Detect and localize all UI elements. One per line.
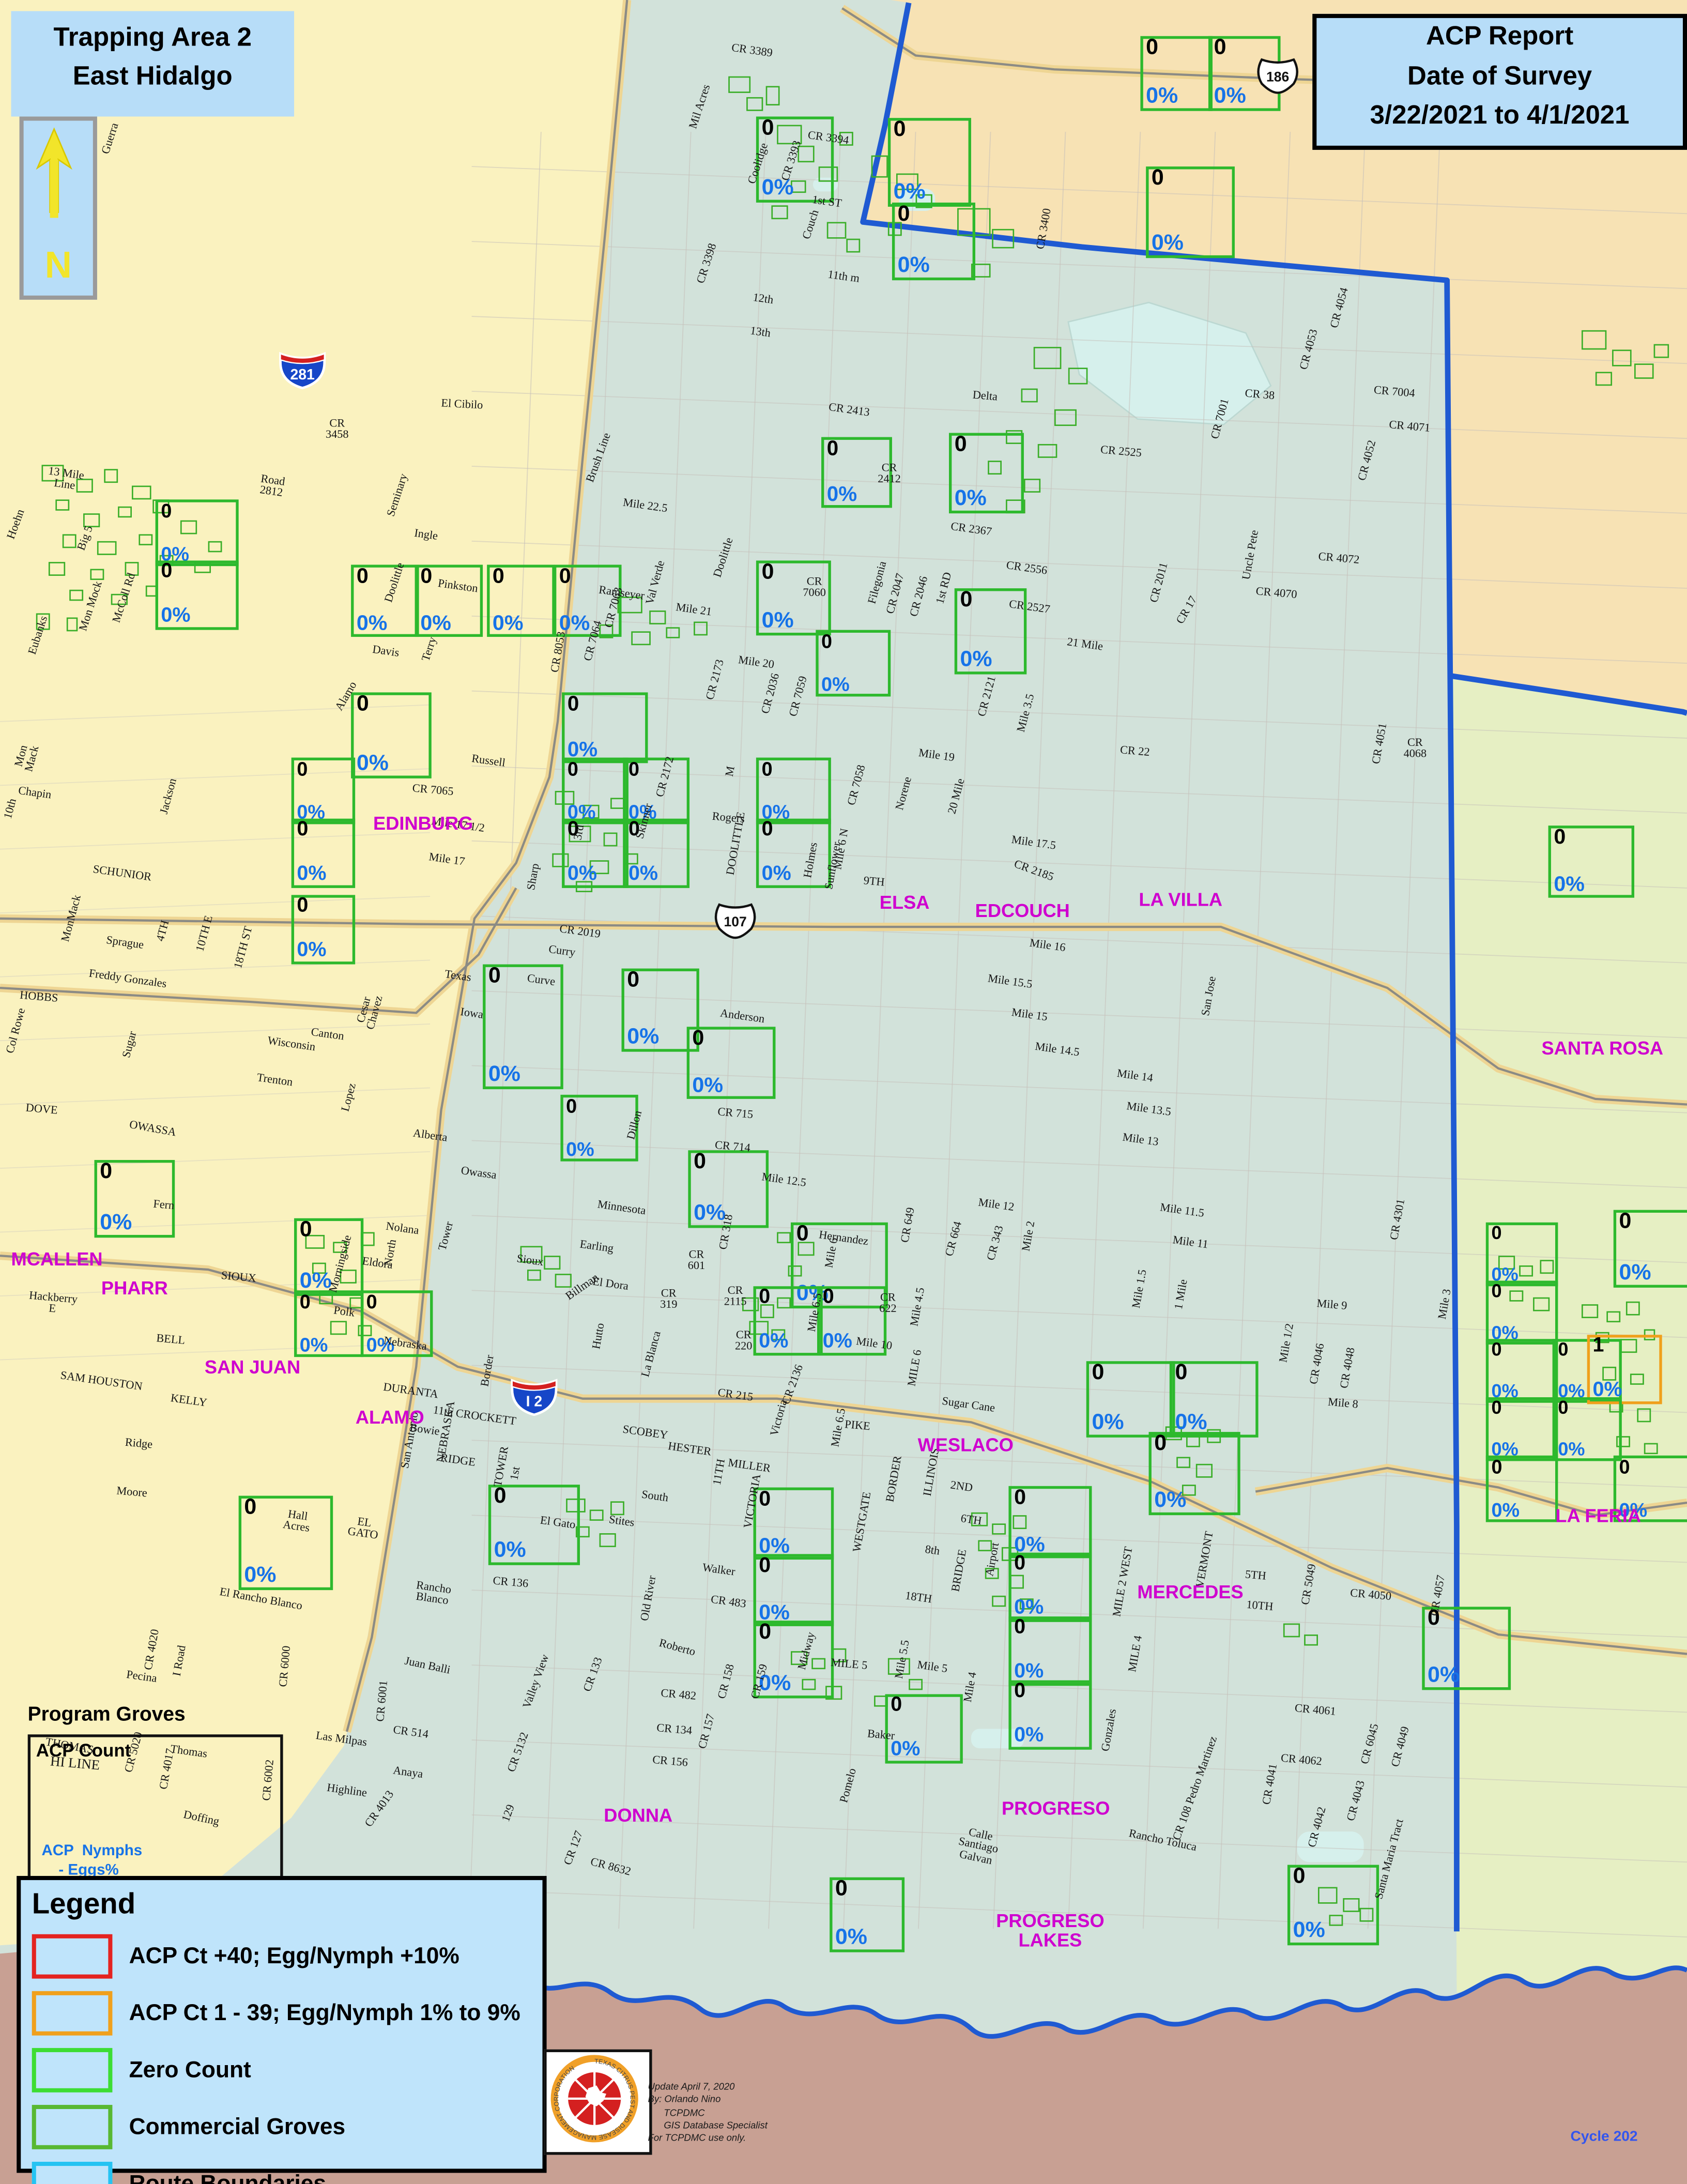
egg-nymph-pct-value: 0% [827,484,857,505]
us-route-shield-icon: 107 [712,901,759,947]
commercial-grove-outline [590,1509,604,1520]
grove-count-box: 00% [687,1027,776,1099]
acp-count-value: 0 [357,566,369,587]
legend-item: Zero Count [32,2048,543,2093]
egg-nymph-pct-value: 0% [297,865,326,885]
grove-count-box: 00% [816,630,891,697]
grove-count-box: 00% [292,895,355,964]
road-label: 8th [924,1545,940,1558]
grove-count-box: 00% [756,819,831,888]
acp-count-value: 0 [762,820,773,841]
egg-nymph-pct-value: 0% [835,1927,867,1949]
grove-count-box: 00% [885,1694,963,1763]
egg-nymph-pct-value: 0% [1152,233,1184,255]
egg-nymph-pct-value: 0% [161,607,190,628]
commercial-grove-outline [67,617,78,631]
road-label: EL GATO [347,1515,380,1542]
road-label: Baker [867,1729,895,1743]
legend-item-label: Route Boundaries [129,2171,326,2184]
legend-item-label: ACP Ct 1 - 39; Egg/Nymph 1% to 9% [129,2000,520,2026]
road-label: CR 38 [1245,388,1275,403]
road-label: BELL [156,1333,185,1347]
legend-item: Route Boundaries [32,2162,543,2184]
grove-count-box: 00% [292,819,355,888]
egg-nymph-pct-value: 0% [628,865,658,885]
road-label: CR 601 [688,1249,705,1273]
grove-count-box: 00% [892,203,975,280]
egg-nymph-pct-value: 0% [1214,86,1246,108]
egg-nymph-pct-value: 0% [1014,1727,1044,1747]
legend-item-label: ACP Ct +40; Egg/Nymph +10% [129,1943,459,1969]
egg-nymph-pct-value: 0% [1558,1440,1585,1458]
grove-count-box: 00% [1146,166,1235,258]
commercial-grove-outline [1644,1443,1658,1454]
acp-count-value: 0 [568,759,578,778]
acp-count-value: 0 [568,694,579,714]
acp-count-value: 0 [161,501,172,521]
commercial-grove-outline [728,77,750,93]
grove-count-box: 00% [294,1290,363,1357]
commercial-grove-outline [827,222,847,238]
commercial-grove-outline [544,1256,560,1270]
legend-panel: Legend ACP Ct +40; Egg/Nymph +10%ACP Ct … [17,1876,546,2173]
city-label: SANTA ROSA [1541,1039,1663,1059]
grove-count-box: 00% [562,692,648,763]
north-label: N [24,244,93,287]
legend-swatch [32,2048,113,2093]
road-label: CR 220 [735,1330,752,1353]
acp-count-value: 0 [762,118,774,140]
grove-count-box: 00% [623,819,689,888]
svg-text:107: 107 [724,914,747,929]
commercial-grove-outline [1582,1304,1598,1318]
commercial-grove-outline [871,156,888,178]
grove-count-box: 00% [1486,1281,1558,1345]
road-label: 9TH [863,876,885,889]
north-arrow-box: N [20,116,97,299]
grove-count-box: 00% [415,564,483,637]
acp-count-value: 0 [1214,37,1226,59]
commercial-grove-outline [527,1270,541,1280]
road-label: El Cibilo [441,398,483,412]
grove-count-box: 00% [1140,36,1213,111]
city-label: LA VILLA [1139,891,1222,910]
road-label: 13 Mile Line [45,466,85,494]
acp-count-value: 0 [1492,1399,1502,1417]
acp-count-value: 0 [960,590,972,612]
egg-nymph-pct-value: 0% [420,613,451,634]
acp-count-value: 0 [1492,1224,1502,1242]
acp-count-value: 0 [823,1288,834,1308]
acp-count-value: 0 [1146,37,1158,59]
acp-count-value: 0 [161,562,172,583]
road-label: M [725,766,738,777]
acp-count-value: 0 [1558,1340,1568,1359]
road-label: 1st [509,1466,523,1482]
road-label: CR 3458 [326,418,349,441]
commercial-grove-outline [846,239,860,253]
road-label: CR 622 [879,1292,896,1316]
report-line3: 3/22/2021 to 4/1/2021 [1316,97,1683,136]
lake-small-4 [1297,1831,1364,1862]
commercial-grove-outline [666,627,680,638]
road-label: 5TH [1245,1569,1267,1583]
acp-count-value: 0 [891,1696,902,1716]
road-label: PIKE [844,1419,870,1433]
attribution-text: Update April 7, 2020 By: Orlando Nino TC… [648,2081,768,2146]
legend-item: ACP Ct +40; Egg/Nymph +10% [32,1934,543,1979]
acp-nymphs-label: ACP Nymphs - Eggs% [42,1843,143,1881]
commercial-grove-outline [1038,444,1057,458]
legend-swatch [32,2162,113,2184]
egg-nymph-pct-value: 0% [1293,1920,1325,1943]
commercial-grove-outline [1612,349,1632,366]
acp-count-value: 0 [300,1219,312,1242]
commercial-grove-outline [777,1232,791,1243]
egg-nymph-pct-value: 0% [493,613,524,634]
acp-count-value: 0 [827,438,838,459]
grove-count-box: 00% [562,758,628,824]
commercial-grove-outline [132,485,151,499]
grove-count-box: 00% [888,118,971,207]
map-title-line2: East Hidalgo [11,58,294,96]
acp-count-value: 0 [1175,1363,1188,1385]
program-groves-box: ACP Count ACP Nymphs - Eggs% [28,1734,283,1898]
acp-count-value: 0 [1092,1363,1104,1385]
interstate-shield-icon: 281 [278,347,328,396]
grove-count-box: 00% [1008,1553,1092,1622]
acp-count-value: 0 [366,1292,377,1311]
acp-count-value: 0 [1152,168,1164,190]
acp-count-value: 0 [1492,1457,1502,1476]
city-label: MERCEDES [1137,1583,1243,1602]
acp-count-value: 0 [297,820,308,841]
grove-count-box: 00% [830,1877,904,1952]
egg-nymph-pct-value: 0% [1092,1413,1124,1435]
commercial-grove-outline [55,499,69,510]
acp-count-value: 0 [297,896,308,917]
map-canvas: 00%00%00%00%00%00%00%00%00%00%00%00%00%0… [0,0,1687,2184]
legend-item: ACP Ct 1 - 39; Egg/Nymph 1% to 9% [32,1991,543,2036]
acp-count-value: 0 [835,1878,848,1901]
report-line1: ACP Report [1316,18,1683,57]
acp-count-value: 0 [955,434,967,456]
grove-count-box: 00% [1486,1223,1558,1286]
road-label: CR 4068 [1404,738,1427,761]
legend-swatch [32,2105,113,2149]
city-label: PROGRESO [1002,1799,1110,1819]
egg-nymph-pct-value: 0% [1492,1500,1520,1519]
grove-count-box: 00% [1548,826,1634,898]
acp-count-value: 0 [759,1288,770,1308]
grove-count-box: 00% [1422,1607,1511,1690]
acp-count-value: 0 [297,759,308,778]
commercial-grove-outline [746,97,763,111]
road-label: CR 319 [660,1288,677,1311]
grove-count-box: 00% [1553,1397,1622,1461]
map-title-box: Trapping Area 2 East Hidalgo [11,11,294,116]
grove-count-box: 00% [1486,1397,1558,1461]
egg-nymph-pct-value: 0% [1146,86,1178,108]
acp-count-value: 0 [420,566,432,587]
grove-count-box: 00% [1614,1210,1687,1288]
map-stage: 00%00%00%00%00%00%00%00%00%00%00%00%00%0… [0,0,1687,2184]
svg-text:I 2: I 2 [526,1393,543,1410]
grove-count-box: 00% [292,758,355,824]
commercial-grove-outline [118,507,132,517]
commercial-grove-outline [694,622,708,636]
egg-nymph-pct-value: 0% [1428,1665,1460,1687]
acp-count-value: 0 [1558,1399,1568,1417]
egg-nymph-pct-value: 0% [960,649,992,671]
city-label: EDINBURG [373,814,473,834]
acp-count-value: 0 [821,631,832,651]
acp-count-value: 0 [1492,1340,1502,1359]
grove-count-box: 00% [754,1621,834,1698]
commercial-grove-outline [1304,1635,1318,1645]
city-label: MCALLEN [11,1250,102,1270]
commercial-grove-outline [1626,1302,1640,1316]
grove-count-box: 00% [156,560,239,630]
acp-count-value: 0 [1619,1457,1630,1476]
grove-count-box: 00% [562,819,628,888]
egg-nymph-pct-value: 0% [891,1740,920,1761]
egg-nymph-pct-value: 0% [566,1139,594,1159]
grove-count-box: 00% [1486,1456,1558,1522]
road-label: Hall Acres [282,1508,312,1535]
legend-item: Commercial Groves [32,2105,543,2149]
commercial-grove-outline [1283,1624,1300,1638]
city-label: PROGRESO LAKES [996,1912,1104,1951]
acp-count-value: 0 [566,1096,577,1116]
tcpdmc-logo: TEXAS CITRUS PEST AND DISEASE MANAGEMENT… [544,2050,652,2155]
commercial-grove-outline [555,1274,572,1288]
egg-nymph-pct-value: 0% [1619,1263,1651,1285]
road-label: CR 2115 [724,1286,747,1309]
commercial-grove-outline [97,541,117,555]
acp-count-value: 0 [1293,1866,1306,1888]
grove-count-box: 00% [754,1487,834,1560]
acp-count-value: 0 [1014,1618,1025,1639]
commercial-grove-outline [1021,389,1038,403]
interstate-shield-icon: I 2 [509,1374,559,1423]
egg-nymph-pct-value: 0% [100,1213,132,1235]
acp-count-value: 0 [1554,827,1566,848]
acp-count-value: 0 [628,759,639,778]
city-label: ELSA [880,893,930,913]
acp-count-value: 0 [627,970,639,992]
egg-nymph-pct-value: 0% [559,613,590,634]
legend-items: ACP Ct +40; Egg/Nymph +10%ACP Ct 1 - 39;… [32,1934,543,2184]
acp-count-value: 0 [1619,1211,1631,1233]
egg-nymph-pct-value: 0% [821,674,850,694]
acp-count-value: 0 [100,1162,112,1184]
city-label: DONNA [604,1807,672,1826]
road-label: Road 2812 [258,474,286,500]
road-label: Ridge [125,1438,153,1452]
grove-count-box: 00% [756,758,831,824]
commercial-grove-outline [49,562,65,576]
map-title-line1: Trapping Area 2 [11,20,294,58]
acp-count-value: 0 [762,759,773,778]
grove-count-box: 00% [1086,1361,1175,1438]
egg-nymph-pct-value: 0% [357,754,389,776]
acp-count-value: 0 [300,1292,311,1311]
legend-item-label: Zero Count [129,2057,251,2083]
road-label: Fern [152,1199,175,1212]
commercial-grove-outline [1024,479,1040,493]
commercial-grove-outline [1654,344,1669,358]
road-label: CR 2412 [878,463,901,486]
city-label: EDCOUCH [975,902,1070,922]
acp-count-value: 0 [1014,1682,1025,1702]
acp-count-value: 0 [1154,1433,1167,1456]
us-route-shield-icon: 186 [1254,56,1301,102]
commercial-grove-outline [1637,1408,1651,1422]
acp-count-value: 0 [1492,1282,1502,1301]
commercial-grove-outline [1582,330,1606,350]
acp-count-value: 0 [494,1486,507,1508]
tcpdmc-logo-icon: TEXAS CITRUS PEST AND DISEASE MANAGEMENT… [547,2052,642,2145]
grove-count-box: 00% [1287,1865,1379,1946]
commercial-grove-outline [992,229,1014,249]
egg-nymph-pct-value: 0% [1175,1413,1207,1435]
road-label: Rancho Blanco [414,1580,452,1608]
road-label: 10TH [1246,1600,1274,1614]
acp-count-value: 0 [694,1152,706,1174]
grove-count-box: 00% [1149,1432,1240,1515]
acp-count-value: 0 [488,966,501,988]
acp-count-value: 0 [898,204,910,226]
acp-count-value: 0 [759,1555,771,1577]
egg-nymph-pct-value: 0% [297,941,326,962]
grove-count-box: 00% [1008,1616,1092,1686]
city-label: SAN JUAN [205,1358,300,1378]
grove-count-box: 00% [949,433,1024,513]
egg-nymph-pct-value: 0% [955,488,987,511]
egg-nymph-pct-value: 0% [823,1333,852,1353]
commercial-grove-outline [69,590,83,601]
commercial-grove-outline [1034,347,1062,369]
svg-text:186: 186 [1266,69,1289,84]
acp-count-value: 0 [244,1497,256,1519]
acp-count-value: 0 [759,1622,771,1644]
egg-nymph-pct-value: 0% [894,182,926,204]
commercial-grove-outline [1606,1311,1620,1322]
acp-count-value: 0 [559,566,571,587]
road-label: Hackberry E [27,1290,78,1318]
commercial-grove-outline [1054,409,1077,426]
commercial-grove-outline [992,1596,1006,1607]
egg-nymph-pct-value: 0% [898,255,930,278]
grove-count-box: 00% [1486,1339,1558,1402]
city-label: PHARR [101,1279,168,1299]
acp-count-value: 0 [894,119,906,142]
commercial-grove-outline [909,1679,923,1690]
svg-text:281: 281 [290,366,314,383]
commercial-grove-outline [600,1533,616,1547]
commercial-grove-outline [992,1523,1006,1534]
grove-count-box: 00% [1008,1486,1092,1559]
egg-nymph-pct-value: 0% [300,1335,328,1354]
grove-count-box: 00% [754,1554,834,1626]
grove-count-box: 00% [351,692,432,778]
egg-nymph-pct-value: 0% [244,1565,276,1587]
road-label: Delta [972,390,998,404]
acp-count-value: 0 [1014,1554,1025,1575]
commercial-grove-outline [1596,372,1612,386]
city-label: WESLACO [918,1436,1014,1456]
egg-nymph-pct-value: 0% [1154,1490,1186,1513]
grove-count-box: 00% [1170,1361,1259,1438]
commercial-grove-outline [104,469,118,483]
acp-count-value: 0 [692,1028,704,1049]
commercial-grove-outline [1068,368,1088,384]
commercial-grove-outline [649,610,666,624]
city-label: LA FERIA [1555,1507,1641,1526]
acp-count-value: 0 [357,694,369,716]
program-groves-heading: Program Groves [28,1704,186,1726]
commercial-grove-outline [631,631,651,645]
city-label: ALAMO [356,1408,424,1428]
egg-nymph-pct-value: 0% [692,1075,723,1096]
egg-nymph-pct-value: 0% [759,1333,788,1353]
egg-nymph-pct-value: 0% [494,1540,526,1562]
egg-nymph-pct-value: 0% [762,610,794,633]
legend-title: Legend [32,1888,543,1921]
commercial-grove-outline [139,534,152,545]
acp-count-value: 0 [762,562,774,584]
cycle-label: Cycle 202 [1571,2129,1638,2145]
grove-count-box: 00% [1008,1681,1092,1750]
legend-swatch [32,1934,113,1979]
acp-count-value: 0 [796,1224,809,1246]
commercial-grove-outline [766,86,780,105]
acp-report-box: ACP Report Date of Survey 3/22/2021 to 4… [1312,14,1687,150]
acp-count-value: 0 [493,566,504,587]
egg-nymph-pct-value: 0% [762,865,791,885]
commercial-grove-outline [1634,363,1654,379]
commercial-grove-outline [771,205,788,219]
commercial-grove-outline [63,534,76,548]
report-line2: Date of Survey [1316,57,1683,97]
legend-swatch [32,1991,113,2036]
egg-nymph-pct-value: 0% [627,1027,659,1049]
acp-count-value: 1 [1592,1336,1604,1357]
commercial-grove-outline [90,569,104,580]
grove-count-box: 00% [156,499,239,566]
egg-nymph-pct-value: 0% [357,613,388,634]
egg-nymph-pct-value: 0% [1554,874,1585,895]
egg-nymph-pct-value: 0% [488,1064,520,1087]
grove-count-box: 00% [487,564,555,637]
legend-item-label: Commercial Groves [129,2114,345,2140]
acp-count-value: 0 [1014,1487,1026,1508]
road-label: CR 7060 [803,576,826,600]
egg-nymph-pct-value: 0% [568,865,597,885]
grove-count-box: 10% [1587,1335,1662,1404]
acp-count-label: ACP Count [36,1740,131,1761]
